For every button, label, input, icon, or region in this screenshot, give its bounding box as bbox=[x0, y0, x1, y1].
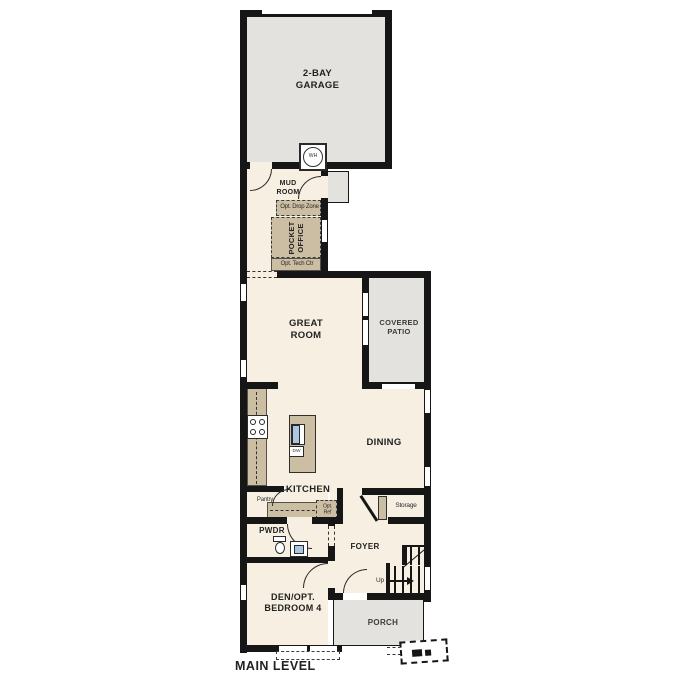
dining-label: DINING bbox=[352, 437, 416, 449]
wall-storage-bottom bbox=[388, 517, 424, 524]
toilet-icon bbox=[275, 542, 285, 554]
wall-greatroom-top bbox=[277, 271, 430, 278]
opt-drop-zone-box: Opt. Drop Zone bbox=[276, 200, 321, 216]
opt-tech-ctr-label: Opt. Tech Ctr bbox=[272, 261, 322, 268]
counter-dash-line bbox=[270, 510, 315, 511]
patio-opening bbox=[382, 383, 415, 389]
wall-storage-top bbox=[362, 488, 430, 495]
wall-stair-upper bbox=[402, 545, 407, 565]
window bbox=[424, 466, 431, 487]
walkway-steps bbox=[399, 638, 448, 664]
walkway-dash bbox=[387, 654, 401, 655]
garage-mud-door-opening bbox=[250, 162, 272, 169]
main-level-label: MAIN LEVEL bbox=[235, 659, 365, 674]
mud-exterior-door-opening bbox=[321, 176, 328, 198]
opt-tech-ctr-box: Opt. Tech Ctr bbox=[271, 258, 321, 271]
den-door-opening bbox=[328, 561, 335, 588]
water-heater-icon: WH bbox=[303, 147, 323, 167]
stair-tread bbox=[410, 547, 412, 565]
patio-edge-line bbox=[382, 382, 415, 384]
porch-label: PORCH bbox=[358, 618, 408, 628]
pocket-office-box: POCKET OFFICE bbox=[271, 217, 321, 258]
storage-label: Storage bbox=[388, 502, 424, 509]
window bbox=[240, 584, 247, 601]
up-arrow-icon bbox=[407, 577, 414, 585]
opt-drop-zone-label: Opt. Drop Zone bbox=[277, 204, 322, 211]
covered-patio-label: COVERED PATIO bbox=[370, 318, 428, 336]
vanity-sink-basin bbox=[294, 545, 304, 554]
dishwasher-icon: DW bbox=[289, 446, 304, 457]
sliding-door-panel bbox=[362, 292, 369, 317]
cased-opening-hall bbox=[247, 271, 277, 278]
wall-pwdr-den bbox=[240, 557, 330, 563]
garage-door-line bbox=[262, 14, 372, 16]
dishwasher-label: DW bbox=[291, 449, 301, 454]
side-landing bbox=[328, 171, 349, 203]
wall-garage-right bbox=[385, 10, 392, 169]
front-door-opening bbox=[343, 593, 367, 600]
foyer-label: FOYER bbox=[340, 542, 390, 552]
window bbox=[240, 359, 247, 378]
walkway-paver bbox=[412, 649, 422, 657]
great-room-label: GREAT ROOM bbox=[262, 318, 350, 341]
water-heater-box: WH bbox=[299, 143, 327, 171]
pantry-label: Pantry bbox=[250, 497, 280, 504]
kitchen-label: KITCHEN bbox=[272, 484, 344, 496]
stair-upper-edge bbox=[402, 545, 428, 547]
up-arrow-line bbox=[388, 580, 408, 582]
sink-icon bbox=[291, 424, 305, 445]
storage-door-jamb bbox=[378, 496, 387, 520]
pwdr-door-opening bbox=[287, 517, 312, 524]
walkway-paver bbox=[425, 650, 431, 656]
floor-plan: Opt. Drop Zone POCKET OFFICE Opt. Tech C… bbox=[0, 0, 687, 687]
den-label: DEN/OPT. BEDROOM 4 bbox=[252, 592, 334, 614]
range-icon bbox=[247, 415, 268, 439]
vanity-icon bbox=[290, 541, 308, 557]
sink-basin bbox=[292, 425, 300, 444]
water-heater-label: WH bbox=[305, 153, 320, 158]
pocket-office-label: POCKET OFFICE bbox=[287, 216, 305, 260]
window bbox=[424, 566, 431, 591]
mud-room-label: MUD ROOM bbox=[258, 180, 318, 197]
stair-tread bbox=[418, 566, 420, 593]
window bbox=[240, 283, 247, 302]
window bbox=[321, 219, 328, 243]
up-label: Up bbox=[372, 577, 388, 584]
wall-kitchen-stub bbox=[240, 382, 278, 389]
cased-opening-foyer bbox=[328, 526, 335, 546]
pwdr-label: PWDR bbox=[252, 526, 292, 536]
opt-ref-label: Opt. Ref bbox=[319, 504, 337, 515]
stair-tread bbox=[418, 547, 420, 565]
window bbox=[424, 389, 431, 414]
sliding-door-panel bbox=[362, 319, 369, 346]
garage-label: 2-BAY GARAGE bbox=[270, 68, 365, 91]
